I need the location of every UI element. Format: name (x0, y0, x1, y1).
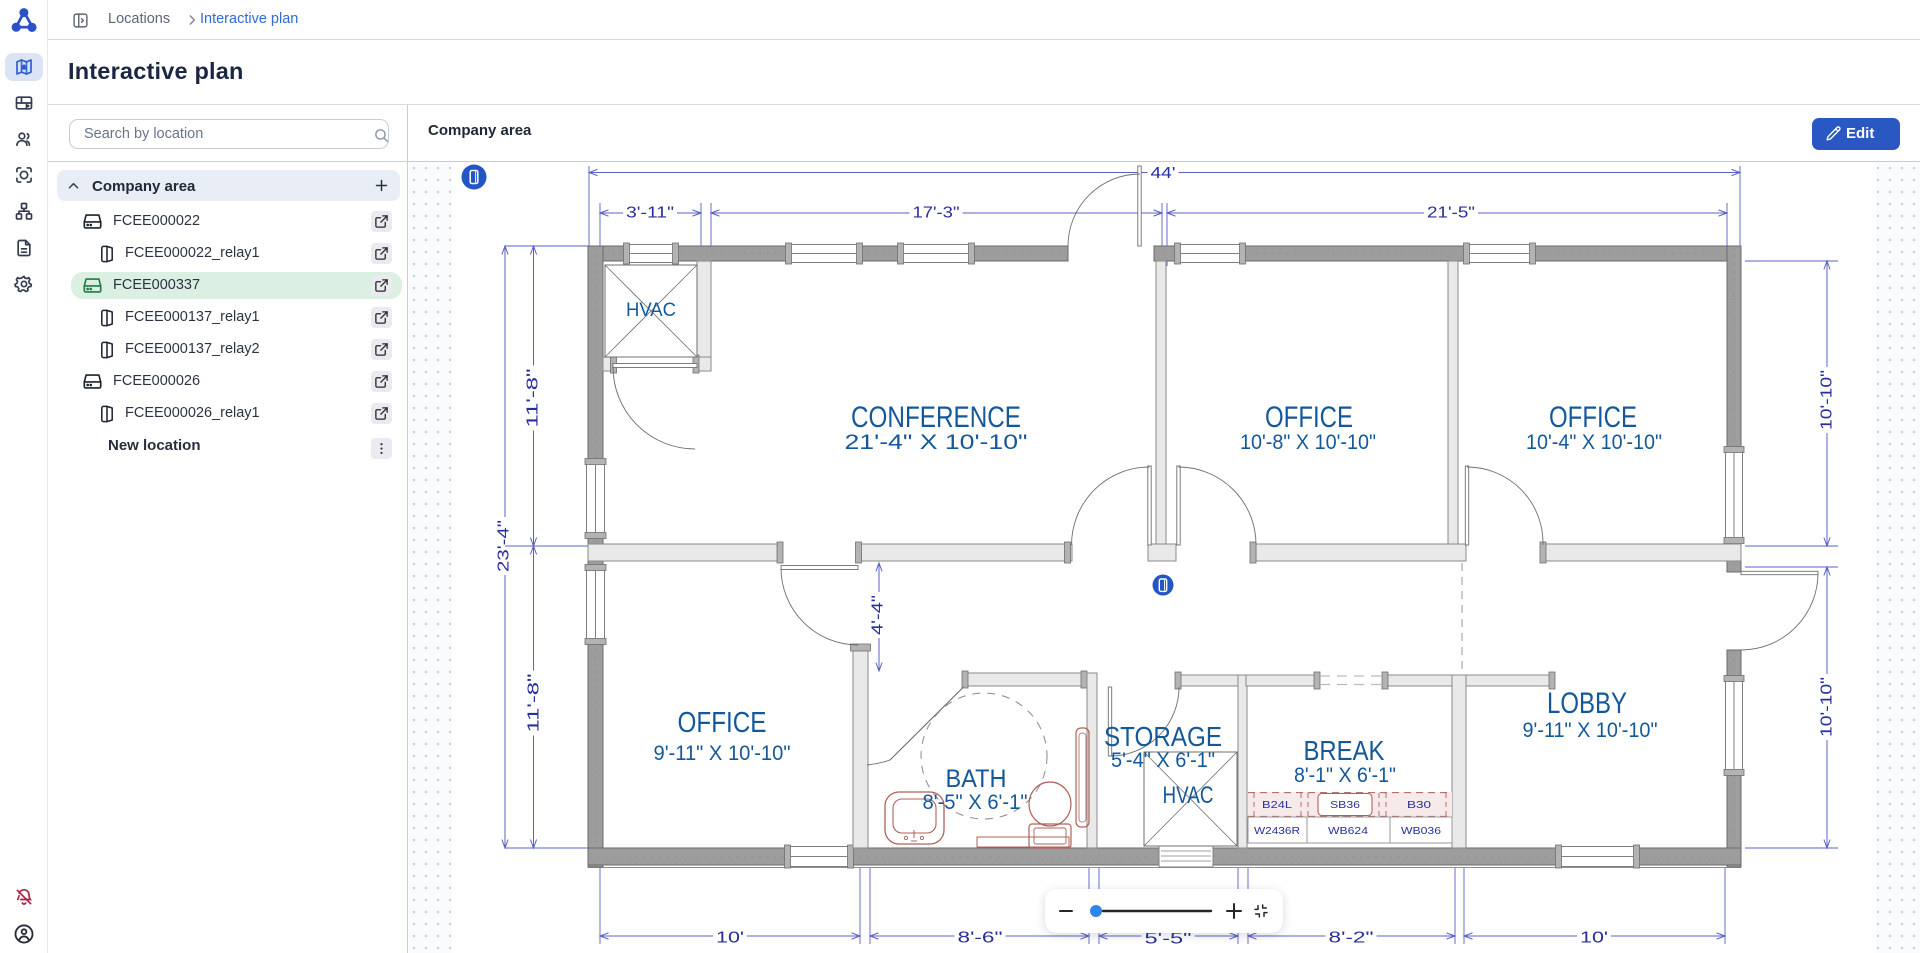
svg-text:17'-3": 17'-3" (913, 204, 960, 221)
svg-text:9'-11" X 10'-10": 9'-11" X 10'-10" (654, 742, 791, 765)
svg-text:BATH: BATH (946, 765, 1007, 793)
svg-text:9'-11" X 10'-10": 9'-11" X 10'-10" (1523, 719, 1658, 742)
svg-text:8'-1" X 6'-1": 8'-1" X 6'-1" (1294, 764, 1396, 787)
svg-text:10'-8" X 10'-10": 10'-8" X 10'-10" (1240, 431, 1376, 454)
svg-text:B24L: B24L (1262, 799, 1292, 811)
svg-text:4'-4": 4'-4" (869, 595, 886, 635)
svg-text:WB624: WB624 (1328, 825, 1368, 837)
svg-text:10': 10' (716, 929, 744, 946)
svg-text:HVAC: HVAC (626, 300, 676, 321)
svg-text:3'-11": 3'-11" (626, 204, 674, 221)
svg-text:8'-5" X 6'-1": 8'-5" X 6'-1" (923, 791, 1028, 814)
svg-text:W2436R: W2436R (1254, 825, 1300, 837)
svg-text:OFFICE: OFFICE (678, 707, 767, 739)
svg-text:CONFERENCE: CONFERENCE (851, 401, 1021, 434)
svg-text:10'-10": 10'-10" (1818, 677, 1835, 737)
svg-text:LOBBY: LOBBY (1547, 687, 1627, 720)
svg-text:OFFICE: OFFICE (1265, 401, 1353, 434)
svg-text:5'-4" X 6'-1": 5'-4" X 6'-1" (1111, 749, 1215, 772)
svg-text:B30: B30 (1407, 799, 1431, 811)
svg-text:8'-2": 8'-2" (1329, 929, 1374, 946)
svg-text:21'-5": 21'-5" (1427, 204, 1475, 221)
svg-text:HVAC: HVAC (1163, 782, 1214, 809)
svg-text:44': 44' (1151, 165, 1176, 182)
svg-text:21'-4" X 10'-10": 21'-4" X 10'-10" (845, 431, 1028, 454)
svg-text:STORAGE: STORAGE (1104, 721, 1222, 752)
svg-text:OFFICE: OFFICE (1549, 401, 1637, 434)
svg-text:WB036: WB036 (1401, 825, 1441, 837)
svg-text:BREAK: BREAK (1304, 735, 1385, 766)
svg-text:SB36: SB36 (1330, 799, 1360, 811)
svg-text:10': 10' (1580, 929, 1608, 946)
svg-text:8'-6": 8'-6" (958, 929, 1003, 946)
svg-text:11'-8": 11'-8" (524, 369, 541, 428)
svg-text:10'-4" X 10'-10": 10'-4" X 10'-10" (1526, 431, 1662, 454)
svg-text:10'-10": 10'-10" (1818, 370, 1835, 430)
svg-text:11'-8": 11'-8" (525, 674, 542, 733)
